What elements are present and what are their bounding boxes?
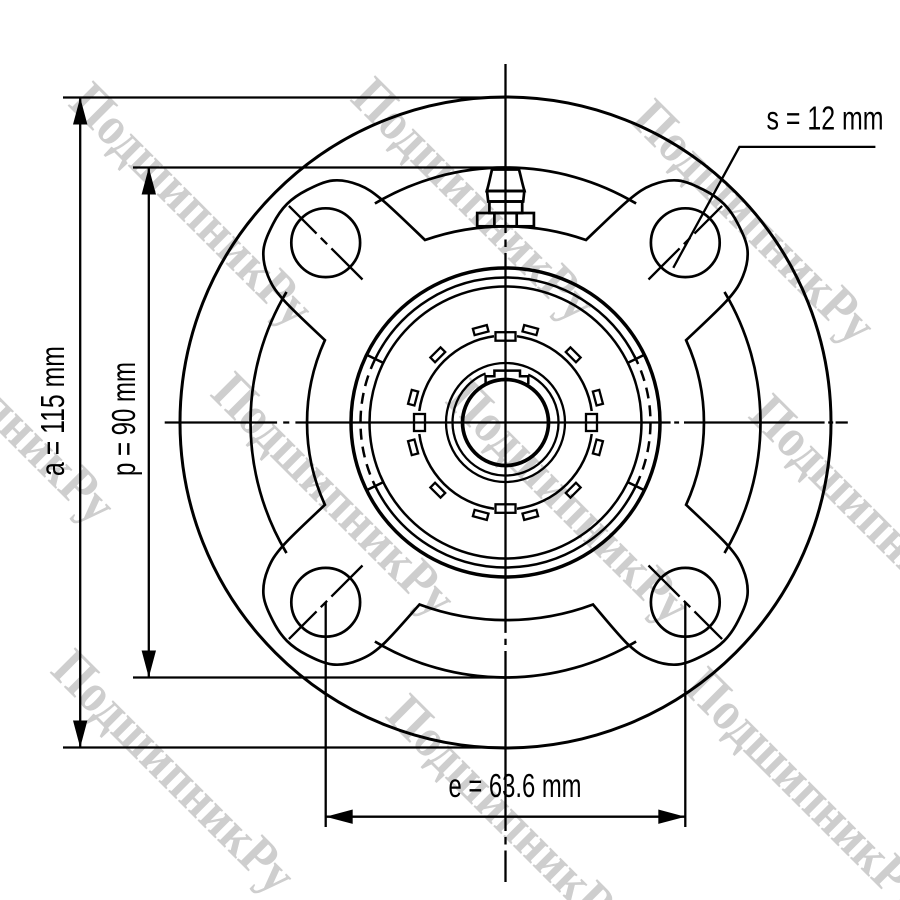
svg-text:s = 12 mm: s = 12 mm: [767, 100, 884, 137]
svg-text:p = 90 mm: p = 90 mm: [105, 362, 142, 476]
svg-text:e = 63.6 mm: e = 63.6 mm: [449, 767, 582, 804]
svg-text:a = 115 mm: a = 115 mm: [34, 346, 71, 476]
